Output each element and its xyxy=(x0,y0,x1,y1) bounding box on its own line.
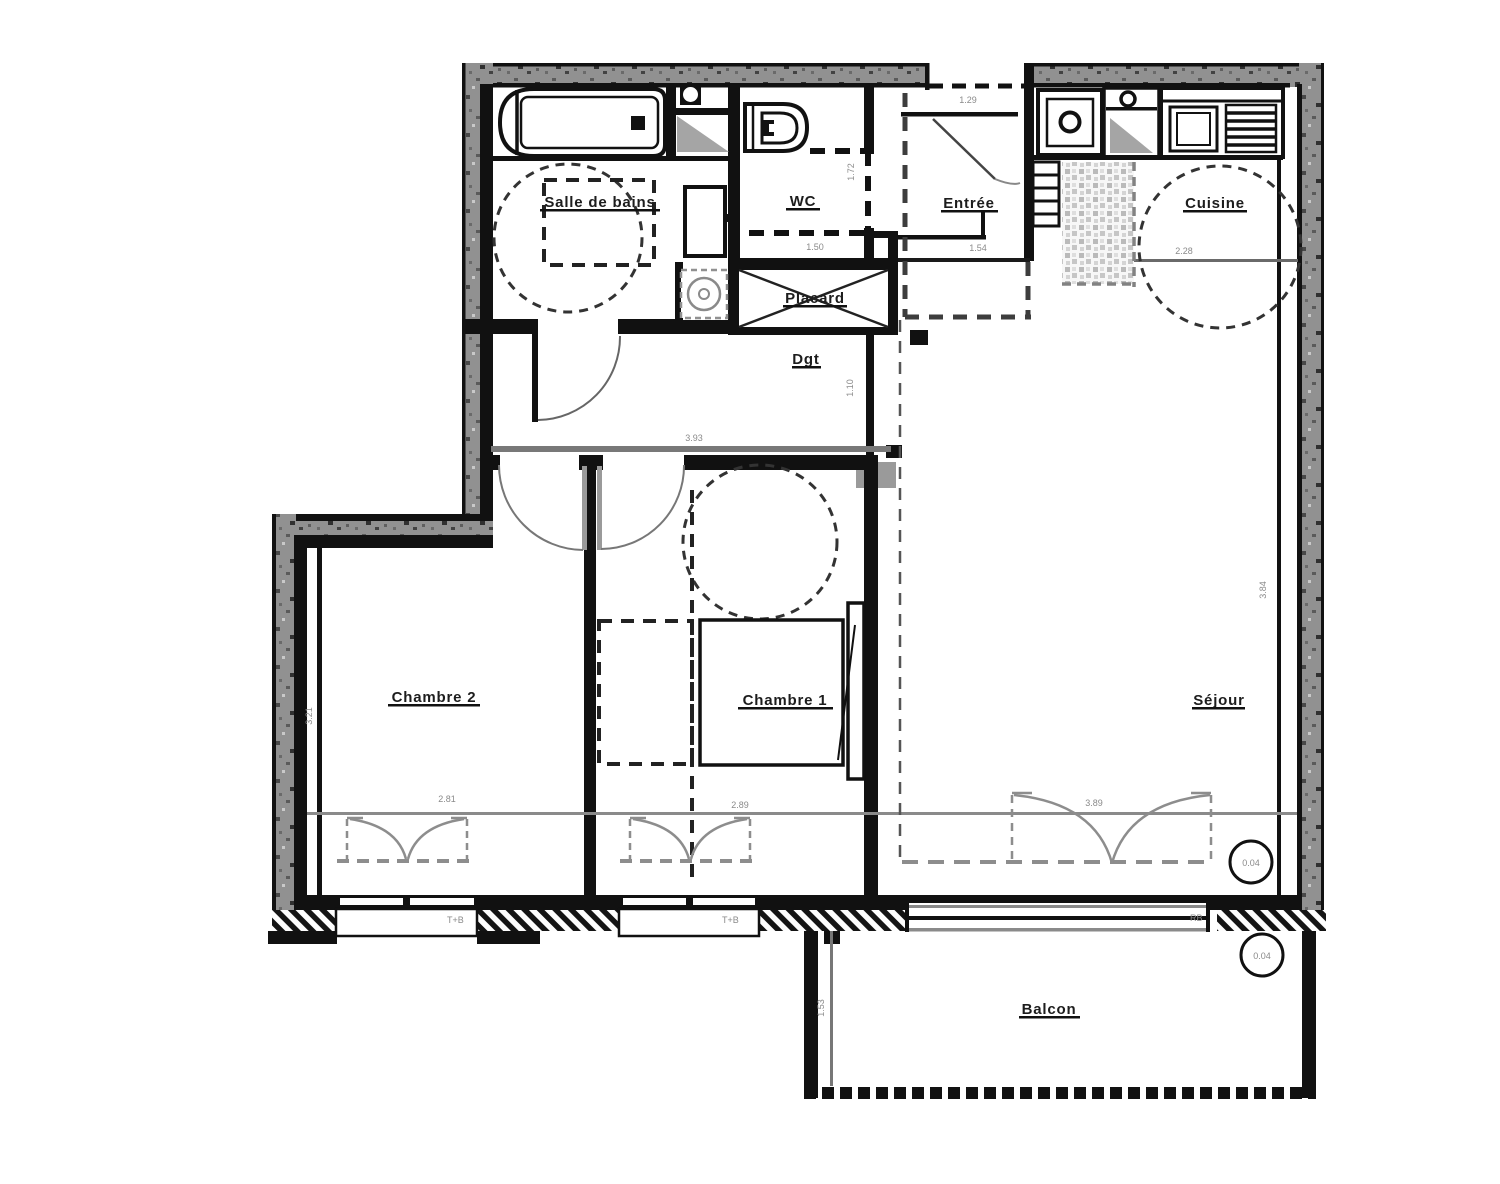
svg-text:2.81: 2.81 xyxy=(438,794,456,804)
svg-text:2.89: 2.89 xyxy=(731,800,749,810)
svg-text:WC: WC xyxy=(790,193,817,210)
svg-text:3.89: 3.89 xyxy=(1085,798,1103,808)
svg-text:1.54: 1.54 xyxy=(969,243,987,253)
svg-text:Placard: Placard xyxy=(785,290,845,307)
svg-text:Cuisine: Cuisine xyxy=(1185,195,1245,212)
svg-text:1.50: 1.50 xyxy=(806,242,824,252)
svg-text:Balcon: Balcon xyxy=(1022,1001,1077,1018)
svg-text:Chambre 1: Chambre 1 xyxy=(743,692,828,709)
svg-text:0.04: 0.04 xyxy=(1242,858,1260,868)
svg-text:1.72: 1.72 xyxy=(846,163,856,181)
svg-text:Dgt: Dgt xyxy=(792,351,819,368)
svg-text:1.29: 1.29 xyxy=(959,95,977,105)
svg-text:1.10: 1.10 xyxy=(845,379,855,397)
svg-text:Entrée: Entrée xyxy=(943,195,995,212)
svg-text:1.53: 1.53 xyxy=(816,999,826,1017)
svg-text:Séjour: Séjour xyxy=(1193,692,1244,709)
svg-text:Chambre 2: Chambre 2 xyxy=(392,689,477,706)
svg-text:RB: RB xyxy=(1190,913,1203,923)
svg-text:T+B: T+B xyxy=(722,915,739,925)
svg-text:2.28: 2.28 xyxy=(1175,246,1193,256)
svg-text:3.84: 3.84 xyxy=(1258,581,1268,599)
svg-text:0.04: 0.04 xyxy=(1253,951,1271,961)
svg-text:3.93: 3.93 xyxy=(685,433,703,443)
svg-text:Salle de bains: Salle de bains xyxy=(544,194,655,211)
svg-text:3.21: 3.21 xyxy=(304,707,314,725)
svg-text:T+B: T+B xyxy=(447,915,464,925)
